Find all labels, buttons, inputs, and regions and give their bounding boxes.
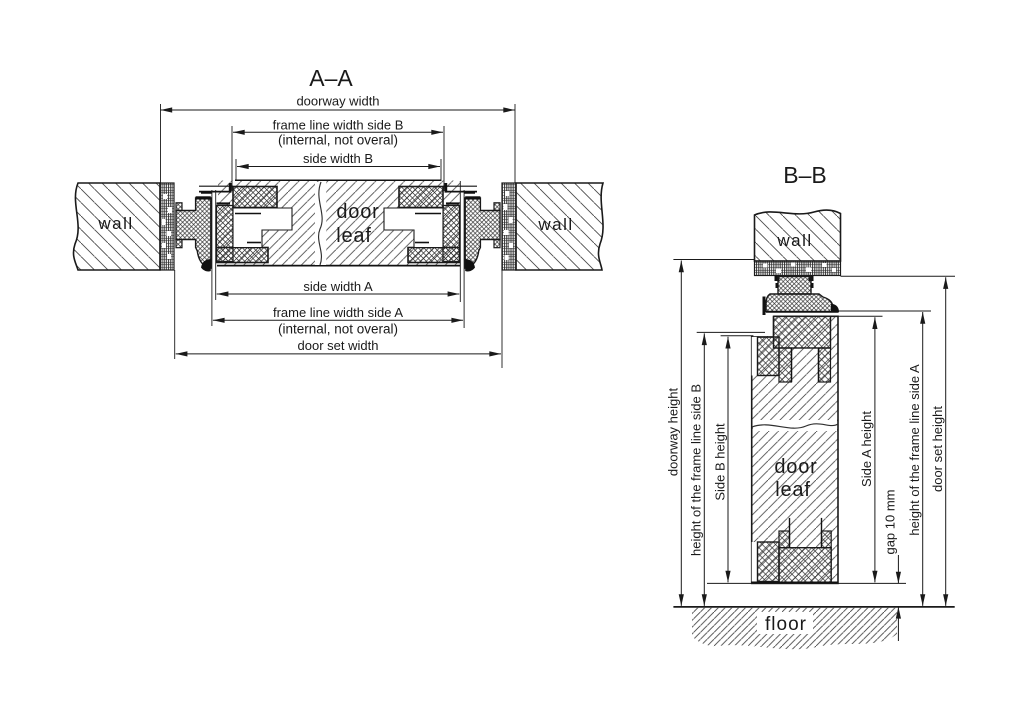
svg-text:side width A: side width A — [303, 279, 373, 294]
svg-text:frame line width side A: frame line width side A — [273, 305, 403, 320]
svg-text:(internal, not overal): (internal, not overal) — [278, 133, 398, 148]
svg-text:wall: wall — [776, 231, 812, 250]
svg-text:(internal, not overal): (internal, not overal) — [278, 322, 398, 337]
svg-text:door: door — [336, 201, 379, 223]
svg-text:side width B: side width B — [303, 151, 373, 166]
svg-text:door set height: door set height — [930, 406, 945, 492]
svg-text:Side B height: Side B height — [713, 423, 728, 501]
svg-text:leaf: leaf — [336, 225, 371, 247]
svg-text:frame line width side B: frame line width side B — [273, 118, 404, 133]
svg-text:wall: wall — [97, 214, 133, 233]
svg-text:A–A: A–A — [309, 65, 353, 91]
svg-text:door: door — [774, 456, 817, 478]
svg-text:doorway height: doorway height — [666, 388, 681, 477]
svg-text:door set width: door set width — [298, 338, 379, 353]
svg-text:Side A height: Side A height — [859, 411, 874, 487]
svg-text:B–B: B–B — [783, 162, 826, 188]
svg-text:floor: floor — [765, 614, 807, 635]
svg-text:gap 10 mm: gap 10 mm — [883, 489, 898, 554]
svg-text:height of the frame line side: height of the frame line side A — [907, 364, 922, 536]
svg-text:doorway width: doorway width — [296, 94, 379, 109]
svg-text:height of the frame line side: height of the frame line side B — [689, 384, 704, 556]
svg-text:wall: wall — [537, 215, 573, 234]
svg-text:leaf: leaf — [775, 479, 810, 501]
